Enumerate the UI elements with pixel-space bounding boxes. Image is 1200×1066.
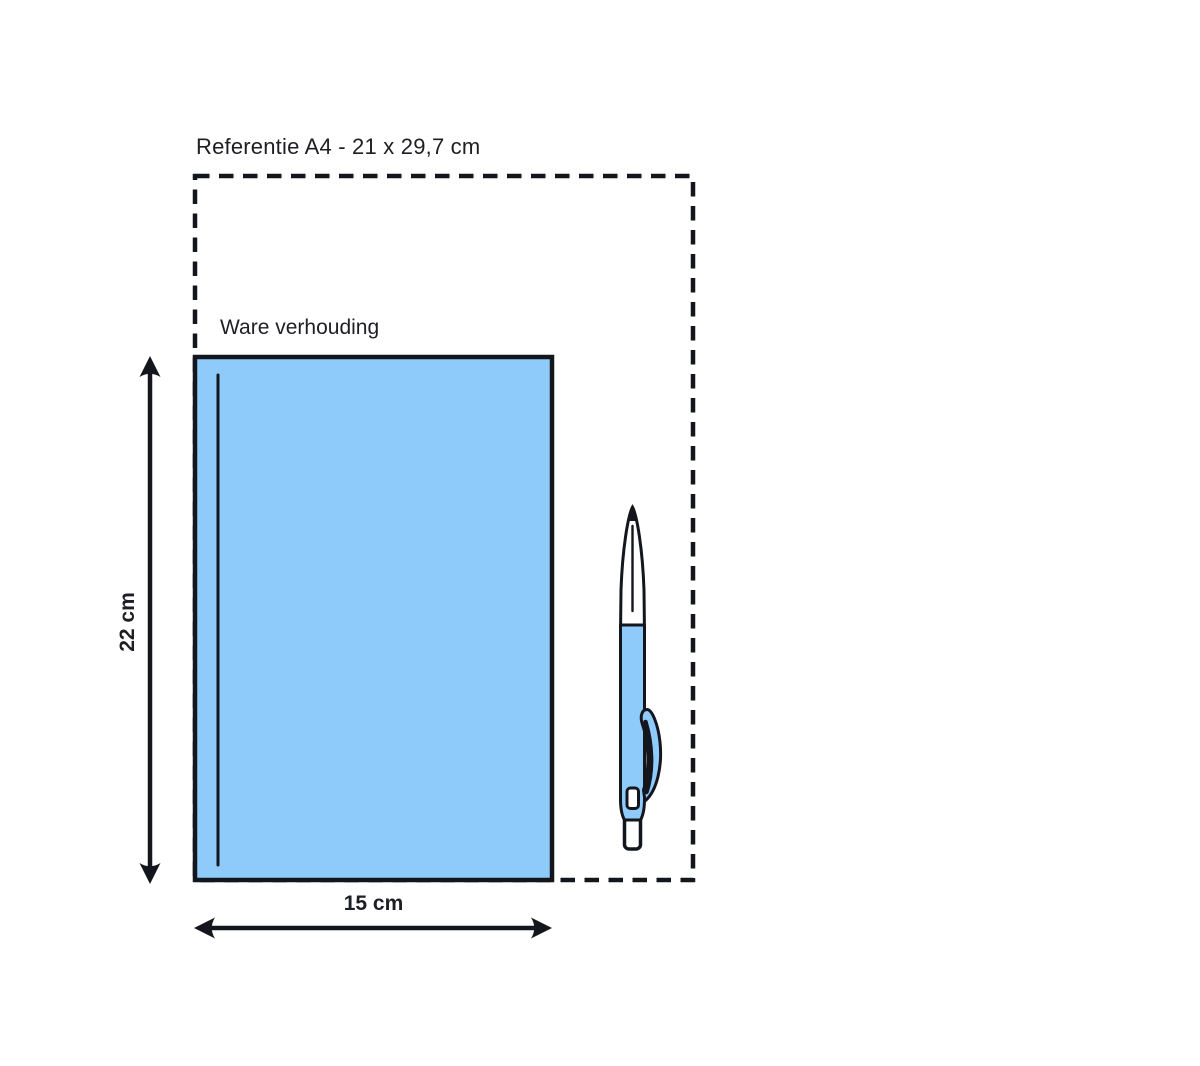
width-dimension-arrow bbox=[194, 918, 552, 939]
product-rectangle bbox=[195, 357, 552, 880]
true-proportion-label: Ware verhouding bbox=[220, 316, 379, 340]
reference-size-label: Referentie A4 - 21 x 29,7 cm bbox=[196, 134, 480, 160]
pen-button-hole bbox=[627, 788, 639, 809]
width-dimension-label: 15 cm bbox=[195, 892, 552, 916]
diagram-graphics bbox=[0, 0, 1200, 1066]
size-comparison-diagram: Referentie A4 - 21 x 29,7 cm Ware verhou… bbox=[0, 0, 1200, 1066]
height-dimension-label: 22 cm bbox=[106, 580, 150, 664]
pen-icon bbox=[621, 504, 661, 849]
